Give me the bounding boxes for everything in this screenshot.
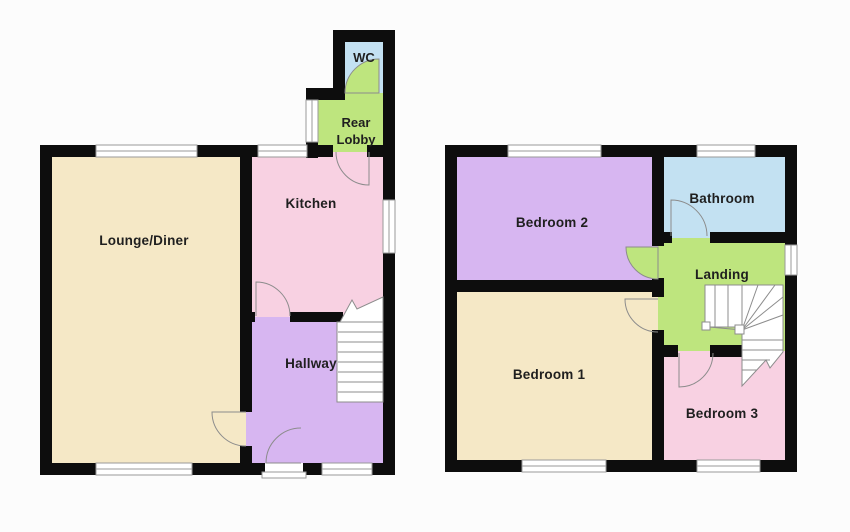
wall-segment: [652, 330, 664, 460]
floorplan-canvas: WC Rear Lobby Kitchen Lounge/Diner Hallw…: [0, 0, 850, 532]
wall-segment: [240, 312, 255, 322]
wall-segment: [445, 280, 664, 292]
room-label-bedroom-3: Bedroom 3: [686, 406, 759, 421]
room-label-bedroom-2: Bedroom 2: [516, 215, 588, 230]
room-label-bathroom: Bathroom: [689, 191, 754, 206]
wall-segment: [40, 145, 52, 475]
wall-segment: [710, 232, 785, 243]
room-label-hallway: Hallway: [285, 356, 337, 371]
room-label-wc: WC: [353, 50, 375, 65]
room-lounge-diner: [46, 150, 246, 469]
room-label-landing: Landing: [695, 267, 749, 282]
wall-segment: [240, 157, 252, 412]
wall-segment: [710, 345, 742, 357]
room-label-lounge-diner: Lounge/Diner: [99, 233, 189, 248]
room-label-bedroom-1: Bedroom 1: [513, 367, 586, 382]
stair-newel-post: [735, 325, 744, 334]
room-label-kitchen: Kitchen: [286, 196, 337, 211]
front-door-threshold: [262, 472, 306, 478]
room-label-rear-lobby-line2: Lobby: [337, 132, 377, 147]
wall-segment: [664, 345, 678, 357]
stair-newel-post: [702, 322, 710, 330]
wall-segment: [240, 446, 252, 463]
wall-segment: [290, 312, 343, 322]
first-floor-plan: Bedroom 2 Bathroom Landing Bedroom 1 Bed…: [445, 145, 797, 472]
floorplan-image: WC Rear Lobby Kitchen Lounge/Diner Hallw…: [0, 0, 850, 532]
wall-segment: [445, 145, 457, 472]
room-kitchen: [246, 150, 389, 317]
wall-segment: [652, 157, 664, 246]
wall-segment: [785, 145, 797, 472]
room-label-rear-lobby-line1: Rear: [342, 115, 371, 130]
